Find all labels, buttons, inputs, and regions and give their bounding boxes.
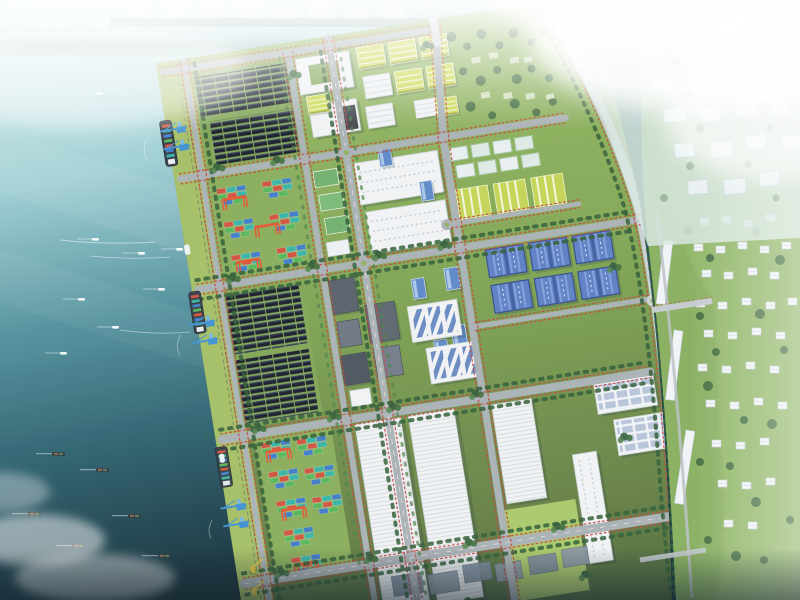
port-industrial-park-rendering	[0, 0, 800, 600]
aerial-rendering-canvas	[0, 0, 800, 600]
atmosphere	[0, 0, 800, 600]
